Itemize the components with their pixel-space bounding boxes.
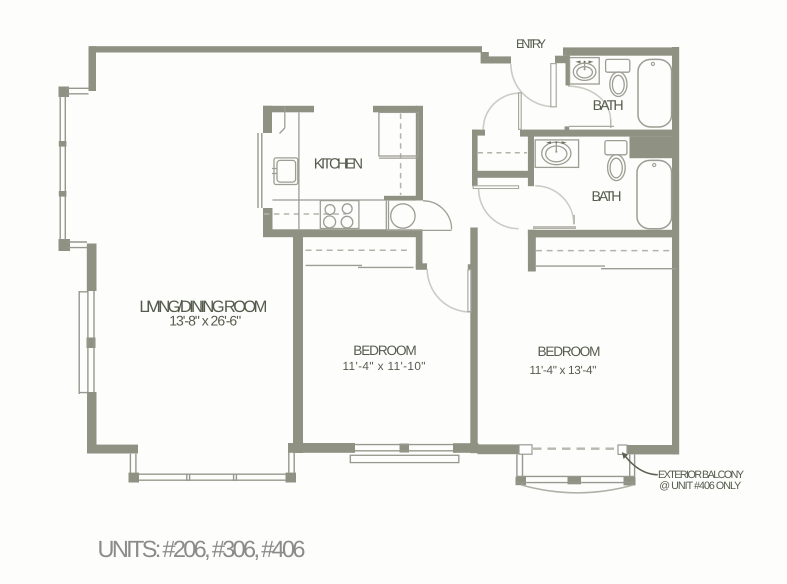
- svg-text:13'-8" x 26'-6": 13'-8" x 26'-6": [169, 313, 241, 329]
- svg-text:KITCHEN: KITCHEN: [314, 157, 363, 173]
- svg-text:@ UNIT #406 ONLY: @ UNIT #406 ONLY: [659, 480, 741, 492]
- svg-text:11'-4" x 13'-4": 11'-4" x 13'-4": [529, 363, 596, 377]
- svg-text:BEDROOM: BEDROOM: [538, 344, 601, 359]
- svg-text:UNITS: #206, #306, #406: UNITS: #206, #306, #406: [98, 536, 306, 562]
- svg-text:BEDROOM: BEDROOM: [353, 343, 416, 358]
- svg-text:BATH: BATH: [592, 189, 622, 205]
- svg-text:ENTRY: ENTRY: [516, 37, 547, 51]
- svg-text:BATH: BATH: [593, 98, 624, 114]
- svg-text:11'-4" x 11'-10": 11'-4" x 11'-10": [343, 359, 426, 373]
